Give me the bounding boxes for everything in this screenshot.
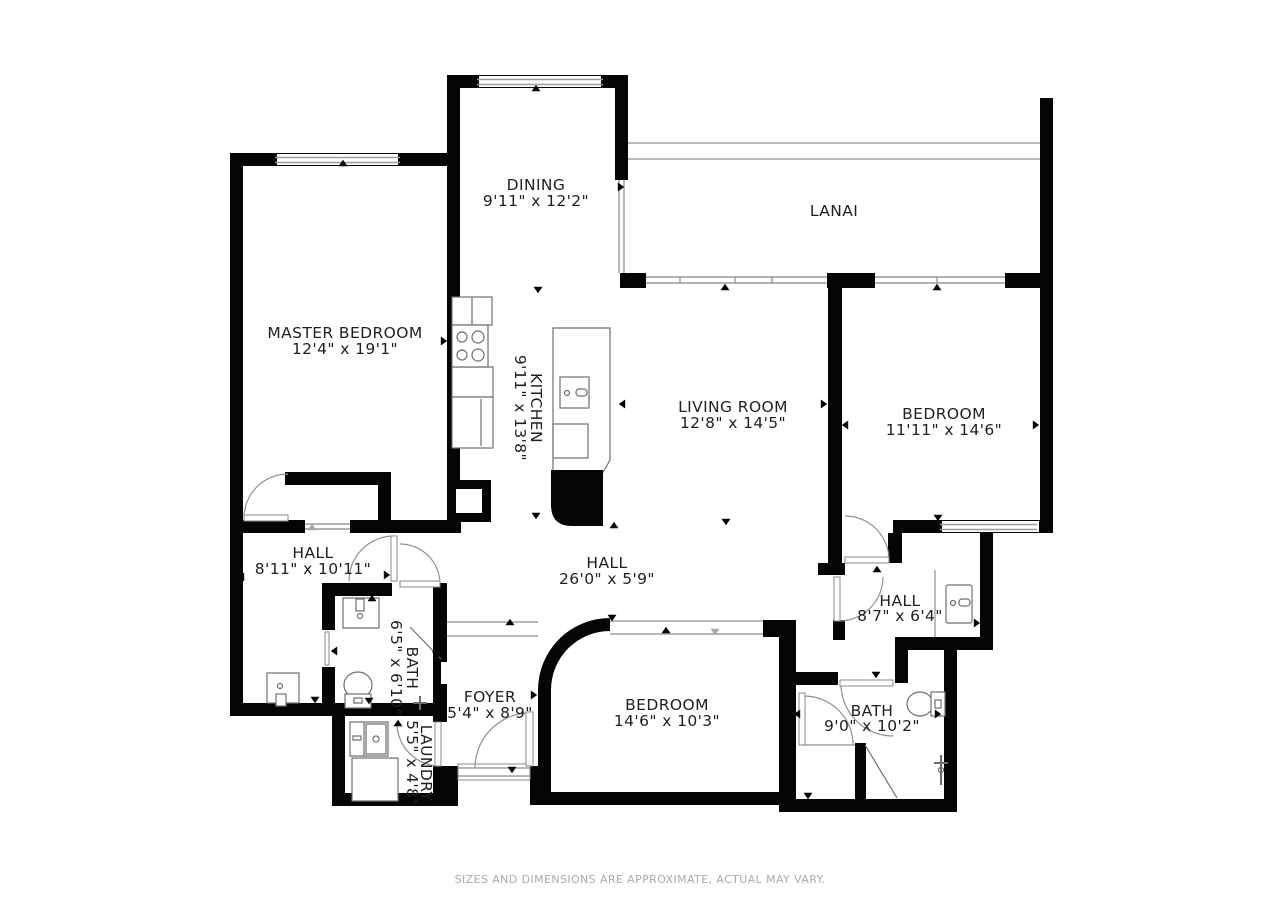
room-label-lanai: LANAI (810, 202, 858, 220)
stove-icon (452, 325, 488, 367)
floor-plan-page: DINING 9'11" x 12'2" LANAI MASTER BEDROO… (0, 0, 1280, 905)
direction-arrow (873, 566, 882, 572)
dryer-icon (352, 758, 398, 801)
bath-left-sink-icon (343, 598, 379, 628)
bath-right-toilet-icon (907, 692, 945, 716)
direction-arrow (1033, 421, 1039, 430)
direction-arrow (722, 519, 731, 525)
room-dims-dining: 9'11" x 12'2" (483, 192, 589, 210)
bath-right-shower-icon (865, 745, 948, 798)
pocket-door-icon (325, 632, 329, 665)
direction-arrow (534, 287, 543, 293)
floor-plan-drawing: DINING 9'11" x 12'2" LANAI MASTER BEDROO… (0, 0, 1280, 905)
window-icon (616, 180, 627, 273)
window-icon (273, 154, 402, 165)
direction-arrow (821, 400, 827, 409)
direction-arrow (384, 571, 390, 580)
windows (273, 76, 1039, 532)
room-dims-bath-right: 9'0" x 10'2" (824, 717, 920, 735)
sliding-door-icon (646, 274, 827, 286)
direction-arrow (662, 627, 671, 633)
direction-arrow (872, 672, 881, 678)
direction-arrow (842, 421, 848, 430)
room-dims-hall-right: 8'7" x 6'4" (857, 607, 943, 625)
hall-right-sink-icon (946, 585, 972, 623)
direction-arrow (532, 513, 541, 519)
direction-arrow (394, 720, 403, 726)
disclaimer-text: SIZES AND DIMENSIONS ARE APPROXIMATE, AC… (455, 873, 826, 886)
door-icon (244, 474, 288, 521)
direction-arrow (804, 793, 813, 799)
direction-arrow (974, 619, 980, 628)
hall-vanity-sink-icon (267, 673, 299, 706)
room-dims-bedroom-bottom: 14'6" x 10'3" (614, 712, 720, 730)
lanai-railing (628, 143, 1040, 159)
bath-left-toilet-icon (344, 672, 372, 708)
kitchen-counter (452, 297, 493, 448)
kitchen-island (551, 328, 610, 526)
room-dims-bath-left: 6'5" x 6'10" (387, 620, 405, 716)
room-dims-hall-center: 26'0" x 5'9" (559, 570, 655, 588)
direction-arrow (619, 400, 625, 409)
room-dims-bedroom-right: 11'11" x 14'6" (886, 421, 1002, 439)
door-icon (845, 516, 889, 563)
window-icon (475, 76, 605, 87)
direction-arrow (610, 522, 619, 528)
room-dims-living-room: 12'8" x 14'5" (680, 414, 786, 432)
entry-door-icon (458, 712, 533, 780)
direction-arrow (531, 691, 537, 700)
direction-arrow (311, 697, 320, 703)
room-dims-foyer: 5'4" x 8'9" (447, 704, 533, 722)
room-dims-kitchen: 9'11" x 13'8" (511, 355, 529, 461)
window-icon (938, 521, 1039, 532)
sliding-door-icon (875, 274, 1005, 286)
island-column (551, 470, 603, 526)
room-dims-laundry: 5'5" x 4'8" (403, 720, 421, 806)
door-icon (400, 544, 440, 587)
direction-arrow (441, 337, 447, 346)
direction-arrow (331, 647, 337, 656)
room-dims-master-bedroom: 12'4" x 19'1" (292, 340, 398, 358)
washer-icon (350, 722, 388, 756)
room-dims-hall-left: 8'11" x 10'11" (255, 560, 371, 578)
